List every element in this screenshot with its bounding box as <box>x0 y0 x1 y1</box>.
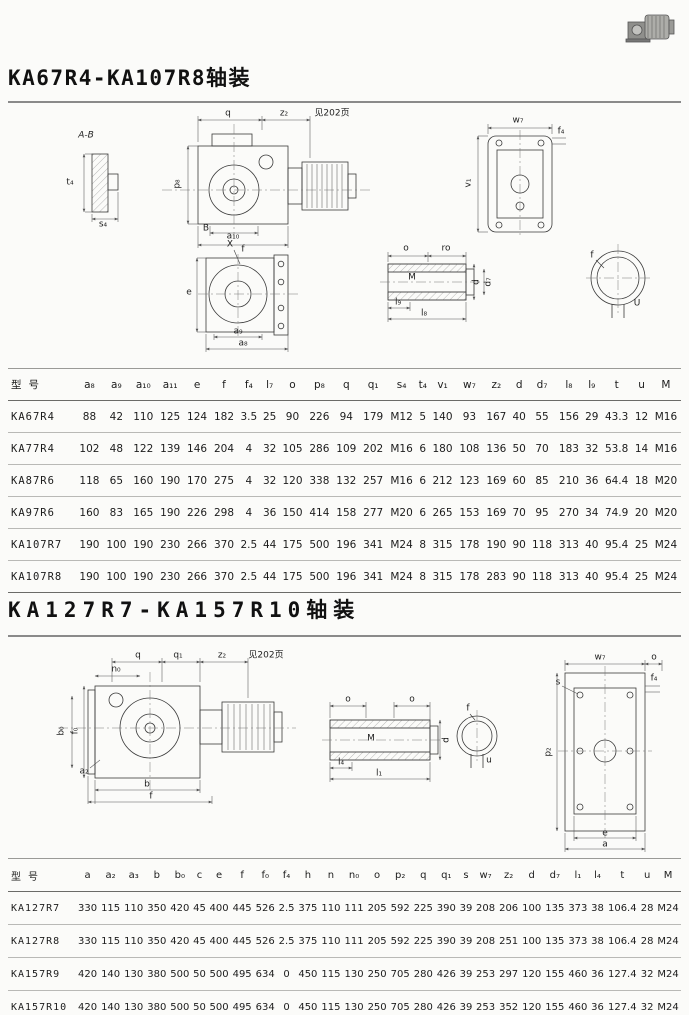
value-cell: 350 <box>145 892 168 925</box>
value-cell: 39 <box>458 958 474 991</box>
table-row: KA127R8330115110350420454004455262.53751… <box>8 925 681 958</box>
value-cell: 95 <box>529 497 556 529</box>
value-cell: 0 <box>277 991 297 1015</box>
dim-label: o <box>403 245 409 254</box>
value-cell: 445 <box>231 892 254 925</box>
value-cell: 330 <box>76 925 99 958</box>
value-cell: 286 <box>306 433 333 465</box>
value-cell: 34 <box>582 497 601 529</box>
value-cell: 130 <box>343 991 366 1015</box>
value-cell: 40 <box>582 561 601 593</box>
model-cell: KA107R7 <box>8 529 76 561</box>
value-cell: 110 <box>319 892 342 925</box>
end-view-2 <box>557 660 662 852</box>
value-cell: 64.4 <box>601 465 632 497</box>
section-title-ka127: KA127R7-KA157R10轴装 <box>8 594 681 637</box>
dim-label: a₈ <box>238 340 247 349</box>
value-cell: 169 <box>483 465 510 497</box>
value-cell: 60 <box>510 465 529 497</box>
value-cell: 420 <box>168 925 191 958</box>
value-cell: 90 <box>510 529 529 561</box>
value-cell: 140 <box>99 991 122 1015</box>
value-cell: 115 <box>99 925 122 958</box>
value-cell: M12 <box>387 401 417 433</box>
value-cell: 50 <box>191 958 207 991</box>
value-cell: 160 <box>130 465 157 497</box>
value-cell: 4 <box>237 465 260 497</box>
dim-label: b <box>144 781 150 790</box>
value-cell: 18 <box>632 465 651 497</box>
value-cell: 420 <box>76 991 99 1015</box>
dim-label: n₀ <box>111 666 120 675</box>
value-cell: 634 <box>254 958 277 991</box>
value-cell: 109 <box>333 433 360 465</box>
value-cell: 280 <box>412 991 435 1015</box>
value-cell: 140 <box>429 401 456 433</box>
value-cell: 315 <box>429 529 456 561</box>
value-cell: 38 <box>589 892 605 925</box>
value-cell: 160 <box>76 497 103 529</box>
table-row: KA157R9420140130380500505004956340450115… <box>8 958 681 991</box>
value-cell: 526 <box>254 925 277 958</box>
column-header: b <box>145 859 168 892</box>
value-cell: 44 <box>260 529 279 561</box>
value-cell: 175 <box>279 529 306 561</box>
value-cell: 25 <box>632 561 651 593</box>
value-cell: 373 <box>566 925 589 958</box>
value-cell: 210 <box>555 465 582 497</box>
column-header: d₇ <box>543 859 566 892</box>
value-cell: 153 <box>456 497 483 529</box>
value-cell: 6 <box>416 465 429 497</box>
column-header: M <box>651 369 681 401</box>
dim-label: w₇ <box>513 117 524 126</box>
value-cell: 4 <box>237 433 260 465</box>
value-cell: 124 <box>184 401 211 433</box>
value-cell: 283 <box>483 561 510 593</box>
dim-label: f₄ <box>558 128 565 137</box>
value-cell: 83 <box>103 497 130 529</box>
value-cell: 29 <box>582 401 601 433</box>
value-cell: 32 <box>582 433 601 465</box>
value-cell: 32 <box>260 433 279 465</box>
table-row: KA107R71901001902302663702.5441755001963… <box>8 529 681 561</box>
dim-label: e <box>602 830 608 839</box>
value-cell: 253 <box>474 958 497 991</box>
value-cell: 420 <box>168 892 191 925</box>
column-header: a₁₁ <box>157 369 184 401</box>
value-cell: 127.4 <box>606 991 640 1015</box>
value-cell: M24 <box>655 892 681 925</box>
column-header: l₈ <box>555 369 582 401</box>
value-cell: 155 <box>543 991 566 1015</box>
dim-label: p₂ <box>545 747 554 756</box>
dim-label: M <box>408 274 416 283</box>
dim-label: z₂ <box>280 110 288 119</box>
model-cell: KA127R7 <box>8 892 76 925</box>
column-header: a <box>76 859 99 892</box>
value-cell: 110 <box>122 925 145 958</box>
value-cell: 28 <box>639 925 655 958</box>
value-cell: 705 <box>389 991 412 1015</box>
value-cell: 2.5 <box>277 925 297 958</box>
value-cell: 118 <box>529 529 556 561</box>
value-cell: 90 <box>510 561 529 593</box>
value-cell: 36 <box>582 465 601 497</box>
catalog-page: KA67R4-KA107R8轴装 <box>0 0 689 1015</box>
value-cell: 53.8 <box>601 433 632 465</box>
value-cell: 175 <box>279 561 306 593</box>
value-cell: 341 <box>360 529 387 561</box>
value-cell: 270 <box>555 497 582 529</box>
model-cell: KA97R6 <box>8 497 76 529</box>
value-cell: 94 <box>333 401 360 433</box>
dim-label: l₄ <box>338 759 344 768</box>
value-cell: 140 <box>99 958 122 991</box>
dim-label: v₁ <box>465 179 474 188</box>
value-cell: 500 <box>208 958 231 991</box>
column-header: h <box>296 859 319 892</box>
value-cell: 445 <box>231 925 254 958</box>
column-header: q₁ <box>360 369 387 401</box>
dim-label: f <box>590 252 593 261</box>
value-cell: 136 <box>483 433 510 465</box>
value-cell: 110 <box>122 892 145 925</box>
dim-label: d <box>443 737 452 743</box>
value-cell: 48 <box>103 433 130 465</box>
dim-label: 见202页 <box>314 110 349 119</box>
end-view <box>478 124 566 238</box>
drawing-block-1: A-Bt₄s₄qz₂见202页p₈Ba₁₀fw₇f₄v₁Xea₉a₈oroMdd… <box>0 106 689 364</box>
value-cell: 123 <box>456 465 483 497</box>
value-cell: 592 <box>389 892 412 925</box>
value-cell: 55 <box>529 401 556 433</box>
column-header: z₂ <box>483 369 510 401</box>
value-cell: 313 <box>555 561 582 593</box>
table-row: KA67R488421101251241823.5259022694179M12… <box>8 401 681 433</box>
value-cell: 118 <box>76 465 103 497</box>
value-cell: 42 <box>103 401 130 433</box>
dim-label: w₇ <box>595 654 606 663</box>
value-cell: 130 <box>122 958 145 991</box>
value-cell: 65 <box>103 465 130 497</box>
value-cell: 8 <box>416 561 429 593</box>
value-cell: 450 <box>296 958 319 991</box>
column-header: q₁ <box>435 859 458 892</box>
dim-label: l₉ <box>395 299 401 308</box>
value-cell: 139 <box>157 433 184 465</box>
column-header: l₄ <box>589 859 605 892</box>
dim-label: B <box>203 225 209 234</box>
column-header: t <box>606 859 640 892</box>
column-header: w₇ <box>474 859 497 892</box>
value-cell: 115 <box>319 991 342 1015</box>
value-cell: 93 <box>456 401 483 433</box>
dim-label: t₄ <box>66 179 73 188</box>
value-cell: 115 <box>99 892 122 925</box>
value-cell: 4 <box>237 497 260 529</box>
value-cell: 20 <box>632 497 651 529</box>
value-cell: 341 <box>360 561 387 593</box>
column-header: f <box>231 859 254 892</box>
dim-label: a₂ <box>79 768 88 777</box>
value-cell: 44 <box>260 561 279 593</box>
dimension-table-1: 型号a₈a₉a₁₀a₁₁eff₄l₇op₈qq₁s₄t₄v₁w₇z₂dd₇l₈l… <box>8 368 681 593</box>
value-cell: 100 <box>103 529 130 561</box>
dim-label: f <box>149 793 152 802</box>
section-ab-view <box>84 154 118 222</box>
main-side-view <box>162 116 372 248</box>
value-cell: 495 <box>231 991 254 1015</box>
value-cell: 190 <box>483 529 510 561</box>
value-cell: 330 <box>76 892 99 925</box>
column-header: d₇ <box>529 369 556 401</box>
dim-label: M <box>367 735 375 744</box>
value-cell: 190 <box>76 529 103 561</box>
value-cell: 108 <box>456 433 483 465</box>
value-cell: 266 <box>184 561 211 593</box>
value-cell: 25 <box>260 401 279 433</box>
value-cell: 6 <box>416 433 429 465</box>
value-cell: 32 <box>260 465 279 497</box>
value-cell: 380 <box>145 991 168 1015</box>
value-cell: 190 <box>76 561 103 593</box>
value-cell: 50 <box>510 433 529 465</box>
value-cell: 169 <box>483 497 510 529</box>
value-cell: 178 <box>456 529 483 561</box>
value-cell: 212 <box>429 465 456 497</box>
value-cell: 370 <box>211 529 238 561</box>
value-cell: 705 <box>389 958 412 991</box>
dim-label: d <box>473 279 482 285</box>
value-cell: 277 <box>360 497 387 529</box>
dim-label: e <box>186 289 192 298</box>
dim-label: f₀ <box>72 728 81 735</box>
dim-label: l₈ <box>421 310 427 319</box>
value-cell: 115 <box>319 958 342 991</box>
model-cell: KA87R6 <box>8 465 76 497</box>
dim-label: o <box>409 696 415 705</box>
value-cell: 592 <box>389 925 412 958</box>
value-cell: 106.4 <box>606 892 640 925</box>
value-cell: 225 <box>412 925 435 958</box>
value-cell: 165 <box>130 497 157 529</box>
value-cell: 226 <box>184 497 211 529</box>
value-cell: 90 <box>279 401 306 433</box>
value-cell: 196 <box>333 529 360 561</box>
value-cell: 250 <box>366 958 389 991</box>
value-cell: 373 <box>566 892 589 925</box>
value-cell: 450 <box>296 991 319 1015</box>
value-cell: 315 <box>429 561 456 593</box>
column-header-model: 型号 <box>8 369 76 401</box>
value-cell: 25 <box>632 529 651 561</box>
value-cell: 74.9 <box>601 497 632 529</box>
value-cell: M20 <box>651 497 681 529</box>
value-cell: 85 <box>529 465 556 497</box>
table-row: KA97R616083165190226298436150414158277M2… <box>8 497 681 529</box>
column-header: e <box>208 859 231 892</box>
value-cell: 40 <box>510 401 529 433</box>
value-cell: 205 <box>366 892 389 925</box>
column-header: z₂ <box>497 859 520 892</box>
table-row: KA157R1042014013038050050500495634045011… <box>8 991 681 1015</box>
value-cell: 95.4 <box>601 561 632 593</box>
value-cell: 460 <box>566 958 589 991</box>
value-cell: 500 <box>168 958 191 991</box>
value-cell: 297 <box>497 958 520 991</box>
value-cell: 105 <box>279 433 306 465</box>
value-cell: 155 <box>543 958 566 991</box>
value-cell: M20 <box>651 465 681 497</box>
dim-label: u <box>486 757 492 766</box>
value-cell: 50 <box>191 991 207 1015</box>
value-cell: 251 <box>497 925 520 958</box>
value-cell: 106.4 <box>606 925 640 958</box>
table-row: KA87R611865160190170275432120338132257M1… <box>8 465 681 497</box>
column-header: t₄ <box>416 369 429 401</box>
value-cell: 400 <box>208 892 231 925</box>
value-cell: 14 <box>632 433 651 465</box>
dim-label: q <box>225 110 231 119</box>
value-cell: 38 <box>589 925 605 958</box>
value-cell: 150 <box>279 497 306 529</box>
column-header: l₉ <box>582 369 601 401</box>
column-header: f₄ <box>237 369 260 401</box>
table-row: KA107R81901001902302663702.5441755001963… <box>8 561 681 593</box>
value-cell: 253 <box>474 991 497 1015</box>
value-cell: 122 <box>130 433 157 465</box>
model-cell: KA157R9 <box>8 958 76 991</box>
gearmotor-photo-icon <box>625 6 677 46</box>
dim-label: a <box>602 841 608 850</box>
value-cell: 266 <box>184 529 211 561</box>
value-cell: M16 <box>651 401 681 433</box>
value-cell: 500 <box>306 561 333 593</box>
gearmotor-photo <box>625 6 677 50</box>
value-cell: 225 <box>412 892 435 925</box>
table-row: KA77R410248122139146204432105286109202M1… <box>8 433 681 465</box>
model-cell: KA157R10 <box>8 991 76 1015</box>
column-header: a₃ <box>122 859 145 892</box>
value-cell: 280 <box>412 958 435 991</box>
value-cell: 111 <box>343 925 366 958</box>
value-cell: 390 <box>435 892 458 925</box>
column-header: a₂ <box>99 859 122 892</box>
value-cell: 338 <box>306 465 333 497</box>
value-cell: 2.5 <box>277 892 297 925</box>
column-header: d <box>510 369 529 401</box>
value-cell: 110 <box>319 925 342 958</box>
column-header: v₁ <box>429 369 456 401</box>
value-cell: 45 <box>191 892 207 925</box>
value-cell: 313 <box>555 529 582 561</box>
value-cell: 179 <box>360 401 387 433</box>
dim-label: ro <box>441 245 450 254</box>
value-cell: 298 <box>211 497 238 529</box>
drawing-block-2: qq₁z₂见202页n₀b₀f₀a₂bfooMdl₄l₁fuw₇osf₄p₂ea <box>0 648 689 858</box>
value-cell: 167 <box>483 401 510 433</box>
column-header: f₄ <box>277 859 297 892</box>
value-cell: 180 <box>429 433 456 465</box>
front-view <box>197 250 298 352</box>
value-cell: 125 <box>157 401 184 433</box>
column-header: b₀ <box>168 859 191 892</box>
column-header: n₀ <box>343 859 366 892</box>
column-header: e <box>184 369 211 401</box>
column-header: a₁₀ <box>130 369 157 401</box>
value-cell: 127.4 <box>606 958 640 991</box>
value-cell: 500 <box>168 991 191 1015</box>
value-cell: 205 <box>366 925 389 958</box>
value-cell: 120 <box>520 991 543 1015</box>
value-cell: 208 <box>474 925 497 958</box>
value-cell: 204 <box>211 433 238 465</box>
value-cell: 45 <box>191 925 207 958</box>
value-cell: 95.4 <box>601 529 632 561</box>
value-cell: 202 <box>360 433 387 465</box>
value-cell: 2.5 <box>237 529 260 561</box>
column-header: n <box>319 859 342 892</box>
column-header: f₀ <box>254 859 277 892</box>
value-cell: 130 <box>122 991 145 1015</box>
column-header: u <box>639 859 655 892</box>
column-header: s₄ <box>387 369 417 401</box>
dim-label: q <box>135 652 141 661</box>
value-cell: M24 <box>651 561 681 593</box>
value-cell: 32 <box>639 958 655 991</box>
value-cell: 135 <box>543 892 566 925</box>
dim-label: s₄ <box>99 221 107 230</box>
value-cell: 12 <box>632 401 651 433</box>
column-header: l₇ <box>260 369 279 401</box>
dim-label: f <box>466 705 469 714</box>
value-cell: 5 <box>416 401 429 433</box>
value-cell: 39 <box>458 892 474 925</box>
value-cell: 36 <box>589 958 605 991</box>
value-cell: 120 <box>520 958 543 991</box>
dim-label: 见202页 <box>248 652 283 661</box>
value-cell: 526 <box>254 892 277 925</box>
value-cell: 3.5 <box>237 401 260 433</box>
dim-label: l₁ <box>376 770 382 779</box>
value-cell: 250 <box>366 991 389 1015</box>
value-cell: 2.5 <box>237 561 260 593</box>
dimension-table-2: 型号aa₂a₃bb₀ceff₀f₄hnn₀op₂qq₁sw₇z₂dd₇l₁l₄t… <box>8 858 681 1015</box>
value-cell: 6 <box>416 497 429 529</box>
dim-label: X <box>227 241 233 250</box>
value-cell: 135 <box>543 925 566 958</box>
value-cell: 230 <box>157 561 184 593</box>
value-cell: M24 <box>387 561 417 593</box>
value-cell: 196 <box>333 561 360 593</box>
table-row: KA127R7330115110350420454004455262.53751… <box>8 892 681 925</box>
value-cell: 100 <box>103 561 130 593</box>
value-cell: M16 <box>651 433 681 465</box>
value-cell: 208 <box>474 892 497 925</box>
value-cell: 170 <box>184 465 211 497</box>
column-header: p₈ <box>306 369 333 401</box>
value-cell: 500 <box>208 991 231 1015</box>
value-cell: 36 <box>260 497 279 529</box>
hollow-shaft-view <box>380 252 484 322</box>
column-header: p₂ <box>389 859 412 892</box>
value-cell: 190 <box>130 561 157 593</box>
value-cell: 370 <box>211 561 238 593</box>
value-cell: 226 <box>306 401 333 433</box>
value-cell: 118 <box>529 561 556 593</box>
value-cell: 414 <box>306 497 333 529</box>
